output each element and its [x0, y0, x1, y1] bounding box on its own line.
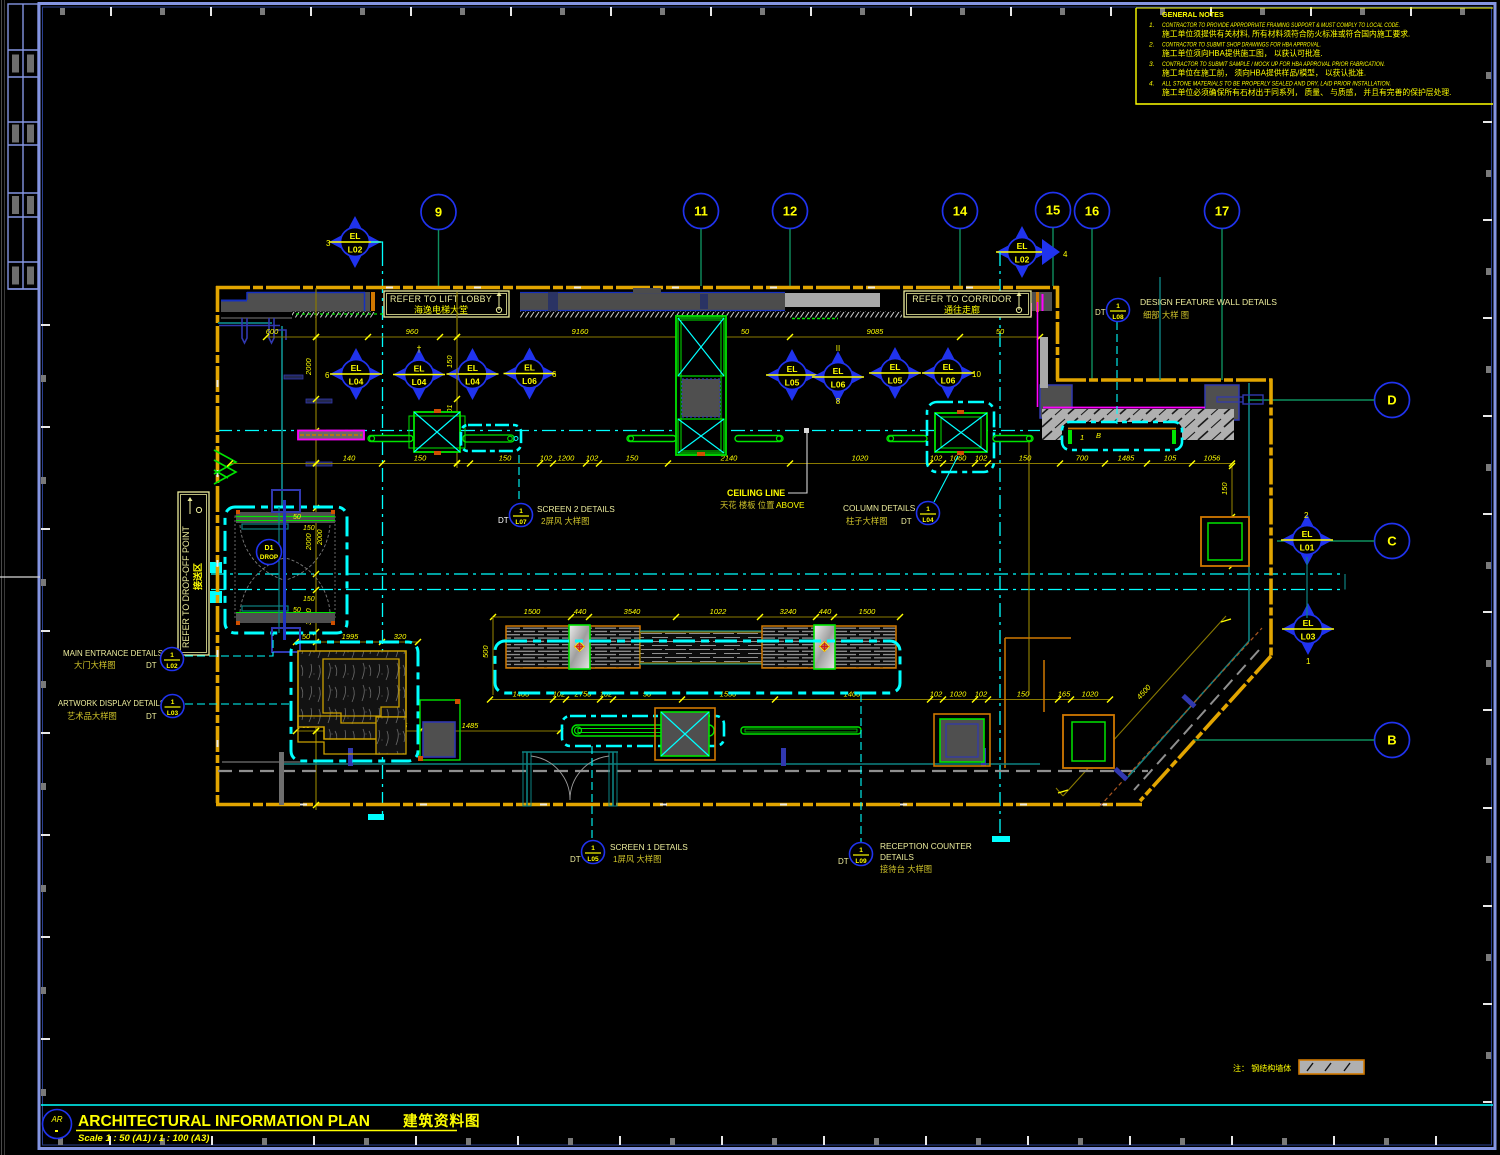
svg-text:EL: EL: [787, 364, 798, 374]
svg-text:DT: DT: [901, 517, 912, 526]
svg-text:16: 16: [1085, 204, 1099, 219]
svg-text:L04: L04: [349, 377, 364, 387]
svg-text:DT: DT: [570, 855, 581, 864]
svg-text:1.: 1.: [1149, 22, 1155, 29]
svg-text:1500: 1500: [859, 607, 877, 616]
svg-text:ARTWORK DISPLAY DETAILS: ARTWORK DISPLAY DETAILS: [58, 698, 165, 708]
svg-text:L07: L07: [515, 519, 527, 526]
svg-text:3.: 3.: [1149, 61, 1155, 68]
svg-text:L05: L05: [785, 378, 800, 388]
svg-text:1485: 1485: [462, 721, 480, 730]
svg-text:4.: 4.: [1149, 81, 1155, 88]
svg-text:L04: L04: [922, 517, 934, 524]
svg-text:RECEPTION COUNTER: RECEPTION COUNTER: [880, 841, 972, 851]
svg-text:440: 440: [819, 607, 832, 616]
svg-text:15: 15: [1046, 203, 1060, 218]
svg-text:柱子大样图: 柱子大样图: [846, 516, 888, 526]
svg-text:施工单位须向HBA提供施工图， 以获认可批准.: 施工单位须向HBA提供施工图， 以获认可批准.: [1162, 48, 1323, 58]
svg-text:L09: L09: [855, 858, 867, 865]
svg-text:700: 700: [1076, 454, 1089, 463]
svg-text:L06: L06: [831, 380, 846, 390]
svg-text:EL: EL: [833, 366, 844, 376]
svg-text:ALL STONE MATERIALS TO BE PROP: ALL STONE MATERIALS TO BE PROPERLY SEALE…: [1161, 81, 1391, 88]
svg-text:DETAILS: DETAILS: [880, 852, 914, 862]
svg-text:L03: L03: [1301, 632, 1316, 642]
svg-text:DT: DT: [146, 712, 157, 721]
svg-text:1485: 1485: [1118, 454, 1136, 463]
svg-text:ARCHITECTURAL INFORMATION PL: ARCHITECTURAL INFORMATION PLAN: [78, 1113, 370, 1130]
svg-text:1: 1: [170, 652, 174, 659]
svg-text:EL: EL: [1303, 618, 1314, 628]
svg-text:REFER TO LIFT LOBBY: REFER TO LIFT LOBBY: [390, 294, 492, 304]
svg-text:艺术品大样图: 艺术品大样图: [67, 711, 117, 721]
svg-text:960: 960: [406, 327, 419, 336]
svg-text:L04: L04: [412, 377, 427, 387]
svg-text:EL: EL: [1017, 241, 1028, 251]
svg-text:102: 102: [930, 690, 943, 699]
svg-text:150: 150: [303, 525, 315, 532]
svg-text:50: 50: [293, 607, 301, 614]
svg-text:L05: L05: [587, 856, 599, 863]
svg-text:150: 150: [1017, 690, 1030, 699]
svg-text:2: 2: [1304, 511, 1309, 520]
svg-text:9: 9: [435, 205, 442, 220]
svg-text:10: 10: [972, 370, 981, 379]
svg-text:1屏风 大样图: 1屏风 大样图: [613, 854, 661, 864]
svg-text:L06: L06: [522, 376, 537, 386]
svg-text:C: C: [1387, 534, 1397, 549]
svg-text:L01: L01: [1300, 543, 1315, 553]
svg-text:EL: EL: [524, 363, 535, 373]
svg-text:150: 150: [1019, 454, 1032, 463]
svg-text:102: 102: [930, 454, 943, 463]
svg-text:CONTRACTOR TO SUBMIT SHOP DRAW: CONTRACTOR TO SUBMIT SHOP DRAWINGS FOR H…: [1162, 42, 1321, 49]
svg-text:L04: L04: [465, 377, 480, 387]
svg-text:AR: AR: [50, 1115, 62, 1124]
svg-text:6: 6: [552, 370, 557, 379]
svg-text:接待台 大样图: 接待台 大样图: [880, 864, 932, 874]
svg-text:DT: DT: [838, 857, 849, 866]
svg-text:大门大样图: 大门大样图: [74, 660, 116, 670]
svg-text:102: 102: [586, 454, 599, 463]
svg-text:50: 50: [293, 514, 301, 521]
svg-text:EL: EL: [943, 362, 954, 372]
svg-text:11: 11: [694, 204, 708, 219]
svg-text:150: 150: [626, 454, 639, 463]
svg-text:MAIN ENTRANCE DETAILS: MAIN ENTRANCE DETAILS: [63, 648, 163, 658]
svg-text:165: 165: [1058, 690, 1071, 699]
svg-text:DT: DT: [1095, 308, 1106, 317]
svg-text:L08: L08: [1112, 314, 1124, 321]
svg-text:EL: EL: [414, 364, 425, 374]
svg-text:320: 320: [394, 632, 407, 641]
svg-text:440: 440: [574, 607, 587, 616]
svg-text:14: 14: [953, 204, 968, 219]
svg-text:EL: EL: [467, 363, 478, 373]
svg-text:L02: L02: [348, 245, 363, 255]
svg-text:REFER TO CORRIDOR: REFER TO CORRIDOR: [912, 294, 1012, 304]
svg-text:8: 8: [836, 397, 841, 406]
svg-text:建筑资料图: 建筑资料图: [403, 1112, 481, 1130]
svg-text:EL: EL: [350, 231, 361, 241]
svg-text:1: 1: [591, 845, 595, 852]
svg-text:B: B: [1387, 733, 1396, 748]
svg-text:CONTRACTOR TO PROVIDE APPROPRI: CONTRACTOR TO PROVIDE APPROPRIATE FRAMIN…: [1162, 22, 1400, 29]
svg-text:3240: 3240: [780, 607, 798, 616]
svg-text:1020: 1020: [950, 690, 968, 699]
svg-text:2000: 2000: [304, 357, 313, 376]
svg-text:1: 1: [1116, 303, 1120, 310]
svg-text:B: B: [1096, 431, 1101, 440]
svg-text:SCREEN 1 DETAILS: SCREEN 1 DETAILS: [610, 842, 688, 852]
svg-text:D1: D1: [265, 545, 274, 552]
svg-text:L02: L02: [166, 663, 178, 670]
svg-text:施工单位在施工前， 须向HBA提供样品/模型， 以获认批准.: 施工单位在施工前， 须向HBA提供样品/模型， 以获认批准.: [1162, 68, 1366, 78]
svg-text:102: 102: [540, 454, 553, 463]
svg-text:17: 17: [1215, 204, 1229, 219]
svg-text:150: 150: [414, 454, 427, 463]
svg-text:102: 102: [975, 454, 988, 463]
svg-text:500: 500: [481, 645, 490, 658]
svg-text:L05: L05: [888, 376, 903, 386]
svg-text:GENERAL NOTES: GENERAL NOTES: [1162, 10, 1224, 19]
svg-text:L03: L03: [167, 710, 179, 717]
svg-text:600: 600: [266, 327, 279, 336]
svg-text:L02: L02: [1015, 255, 1030, 265]
svg-text:3540: 3540: [624, 607, 642, 616]
svg-text:接送区: 接送区: [192, 563, 203, 590]
svg-text:EL: EL: [351, 363, 362, 373]
svg-text:150: 150: [499, 454, 512, 463]
svg-text:EL: EL: [1302, 529, 1313, 539]
svg-text:6: 6: [325, 371, 330, 380]
svg-text:1: 1: [519, 508, 523, 515]
svg-text:REFER TO DROP-OFF POINT: REFER TO DROP-OFF POINT: [181, 526, 191, 648]
svg-text:1022: 1022: [710, 607, 728, 616]
svg-text:1: 1: [859, 847, 863, 854]
svg-text:施工单位必须确保所有石材出于同系列， 质量、 与质感， 并且: 施工单位必须确保所有石材出于同系列， 质量、 与质感， 并且有完善的保护层处理.: [1162, 87, 1451, 97]
svg-text:150: 150: [303, 596, 315, 603]
svg-text:施工单位须提供有关材料, 所有材料须符合防火标准或符合国内施: 施工单位须提供有关材料, 所有材料须符合防火标准或符合国内施工要求.: [1162, 29, 1410, 39]
svg-text:9085: 9085: [867, 327, 885, 336]
svg-text:4: 4: [1063, 250, 1068, 259]
svg-text:102: 102: [975, 690, 988, 699]
svg-text:II: II: [836, 344, 840, 353]
svg-text:1020: 1020: [852, 454, 870, 463]
svg-text:细部 大样 图: 细部 大样 图: [1143, 310, 1189, 320]
svg-text:注： 钢结构墙体: 注： 钢结构墙体: [1233, 1063, 1291, 1073]
svg-text:2屏风 大样图: 2屏风 大样图: [541, 516, 589, 526]
svg-text:ABOVE: ABOVE: [776, 500, 805, 510]
svg-text:CONTRACTOR TO SUBMIT SAMPLE /: CONTRACTOR TO SUBMIT SAMPLE / MOCK UP FO…: [1162, 61, 1385, 68]
svg-text:DROP: DROP: [260, 554, 278, 561]
svg-text:DT: DT: [146, 661, 157, 670]
svg-text:海逸电梯大堂: 海逸电梯大堂: [414, 304, 468, 315]
svg-text:1: 1: [171, 699, 175, 706]
svg-text:150: 150: [445, 355, 454, 368]
svg-text:天花 楼板 位置: 天花 楼板 位置: [720, 500, 774, 510]
svg-text:1: 1: [1080, 433, 1084, 442]
svg-text:1: 1: [1306, 657, 1311, 666]
svg-text:9160: 9160: [572, 327, 590, 336]
svg-text:2000: 2000: [304, 532, 313, 551]
svg-text:†: †: [416, 344, 421, 354]
svg-text:50: 50: [741, 327, 750, 336]
svg-text:1200: 1200: [558, 454, 576, 463]
svg-text:12: 12: [783, 204, 797, 219]
svg-text:L06: L06: [941, 376, 956, 386]
svg-text:2.: 2.: [1148, 42, 1155, 49]
svg-text:CEILING LINE: CEILING LINE: [727, 488, 785, 498]
svg-text:2000: 2000: [317, 529, 324, 546]
svg-text:EL: EL: [890, 362, 901, 372]
svg-text:105: 105: [1164, 454, 1177, 463]
svg-text:1995: 1995: [342, 632, 360, 641]
svg-text:1500: 1500: [524, 607, 542, 616]
svg-text:1: 1: [926, 506, 930, 513]
svg-text:COLUMN DETAILS: COLUMN DETAILS: [843, 503, 916, 513]
svg-text:SCREEN 2 DETAILS: SCREEN 2 DETAILS: [537, 504, 615, 514]
svg-text:3: 3: [326, 239, 331, 248]
svg-text:1056: 1056: [1204, 454, 1222, 463]
svg-text:1020: 1020: [1082, 690, 1100, 699]
svg-text:140: 140: [343, 454, 356, 463]
svg-text:通往走廊: 通往走廊: [944, 304, 980, 315]
svg-text:150: 150: [1220, 482, 1229, 495]
svg-text:DESIGN FEATURE WALL DETAILS: DESIGN FEATURE WALL DETAILS: [1140, 297, 1277, 307]
svg-text:50: 50: [996, 327, 1005, 336]
svg-text:DT: DT: [498, 516, 509, 525]
svg-text:Scale 1 : 50 (A1) / 1 : 100 (A: Scale 1 : 50 (A1) / 1 : 100 (A3): [78, 1133, 209, 1144]
svg-text:D: D: [1387, 393, 1396, 408]
